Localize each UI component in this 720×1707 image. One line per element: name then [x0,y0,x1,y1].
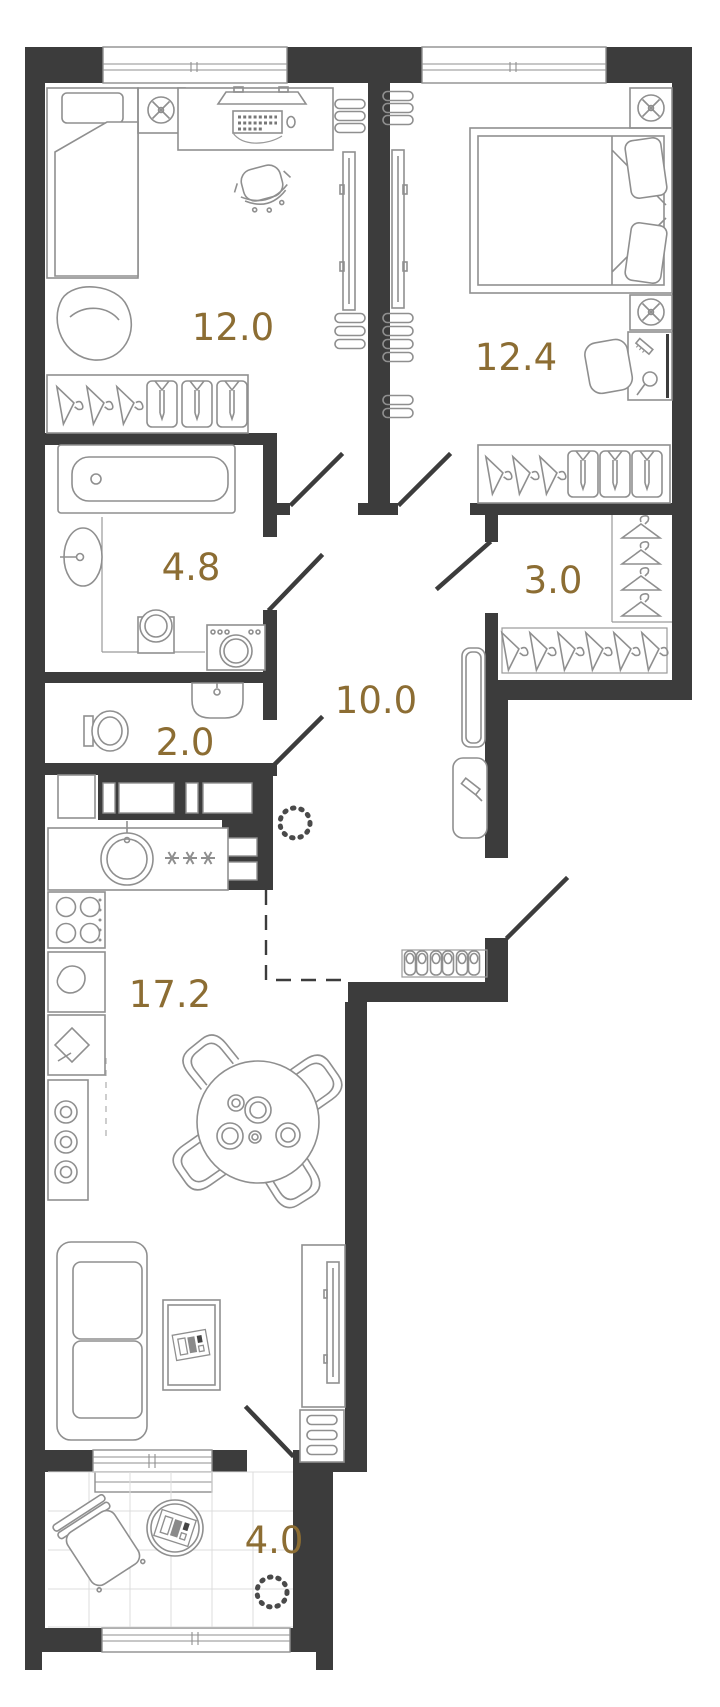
monitor-icon [218,92,306,104]
ventilation-icon [630,88,672,128]
wall-balcony-right [293,1472,333,1652]
wall-entrance-jamb [485,938,508,982]
wall-bedroom2-bottom [470,503,672,515]
dining-set [167,1029,347,1213]
desk [178,87,333,150]
wall-bathroom-right-upper [263,445,277,537]
room-bedroom-1: 12.0 [47,87,365,433]
lounge-chair [52,1494,146,1595]
room-dressing: 3.0 [502,515,672,673]
plant-decor-icon [257,1577,287,1607]
wall-bedroom-door-pier [358,503,398,515]
wall-living-bottom-mid [212,1450,247,1472]
tall-cabinet [48,1080,88,1200]
room-label-bedroom-1: 12.0 [192,306,274,349]
stool [583,338,634,396]
toilet [138,610,174,653]
magazine-icon [172,1329,210,1360]
door-swing-wc [270,718,321,769]
wall-wc-right-upper [263,683,277,720]
zone-boundary-dashed [266,890,348,980]
door-swing-dressing-room [438,543,489,588]
room-label-balcony: 4.0 [245,1519,304,1562]
washing-machine [207,625,265,670]
wall-mirror [666,334,669,398]
room-balcony: 4.0 [48,1472,303,1627]
door-swing-bedroom-2 [400,455,449,504]
sofa [57,1242,147,1440]
wall-between-bedrooms [368,83,390,505]
wardrobe-bedroom-2 [478,445,670,503]
bean-bag-chair [57,287,131,360]
stove [48,892,105,948]
mouse-icon [287,117,295,128]
wall-living-bottom-left [25,1450,93,1472]
ventilation-icon [630,295,672,330]
wall-bathroom-bottom [25,672,277,683]
wall-dressing-door-stub [485,515,498,542]
double-bed [470,128,672,293]
wall-top-center-pier [287,47,422,83]
counter-cabinet-kettle [48,952,105,1012]
counter-cabinet-board [48,1015,105,1075]
wall-hallway-right [485,680,508,858]
tv-unit [300,1245,345,1462]
wall-balcony-foot-left [25,1652,42,1670]
shoe-bench [453,758,487,838]
room-bedroom-2: 12.4 [383,88,672,503]
wall-living-right [345,1002,367,1450]
coffee-table [163,1300,220,1390]
hanger-rail-side [622,516,660,616]
room-bathroom: 4.8 [58,445,265,670]
wall-balcony-bottom-left [25,1628,102,1652]
room-label-bedroom-2: 12.4 [475,336,557,379]
door-swing-bathroom [270,556,321,609]
wall-shelves-right [335,100,365,349]
wall-dressing-bottom [498,680,690,700]
dining-table [197,1061,319,1183]
washbasin [60,528,102,586]
fridge [58,775,95,818]
window-bedroom-2 [422,47,606,83]
door-swing-bedroom-1 [292,455,341,504]
door-swing-balcony [247,1408,292,1455]
room-hallway: 10.0 [280,648,487,977]
floor-plan-drawing: 12.0 [0,0,720,1707]
hallway-mirror [462,648,485,747]
pillow [624,222,668,284]
door-swing-entrance [508,879,566,937]
wall-right-exterior [672,83,692,700]
dressing-table [628,332,672,400]
wall-top-right-corner [606,47,692,83]
room-label-dressing: 3.0 [524,559,583,602]
window-living-to-balcony [93,1450,212,1492]
pillow [624,137,668,199]
wreath-decor-icon [280,808,310,838]
bathtub [58,445,235,513]
wall-wc-bottom [25,763,277,775]
office-chair [230,160,298,219]
room-label-kitchen-living: 17.2 [129,973,211,1016]
wardrobe-bedroom-1 [47,375,248,433]
shoe-rack [402,950,487,977]
single-bed [47,88,138,278]
wc-toilet [84,711,128,751]
wall-balcony-foot-right [316,1652,333,1670]
kitchen-counter [48,821,228,890]
wall-bedroom1-bottom [45,433,277,445]
hanger-rail-bottom [502,629,670,670]
floor-plan-page: 12.0 [0,0,720,1707]
room-label-hallway: 10.0 [335,679,417,722]
room-label-bathroom: 4.8 [162,546,221,589]
room-wc: 2.0 [84,683,243,764]
wall-hallway-top-left-tab [277,503,290,515]
wall-balcony-bottom-right [290,1628,333,1652]
wall-hallway-bottom [348,982,508,1002]
window-balcony [102,1628,290,1652]
window-bedroom-1 [103,47,287,83]
room-label-wc: 2.0 [156,721,215,764]
wall-left-exterior [25,83,45,1652]
wc-sink [192,683,243,718]
room-kitchen-living: 17.2 [48,775,348,1462]
wall-dressing-left-lower [485,613,498,680]
balcony-table [147,1500,203,1556]
wall-top-left-corner [25,47,103,83]
